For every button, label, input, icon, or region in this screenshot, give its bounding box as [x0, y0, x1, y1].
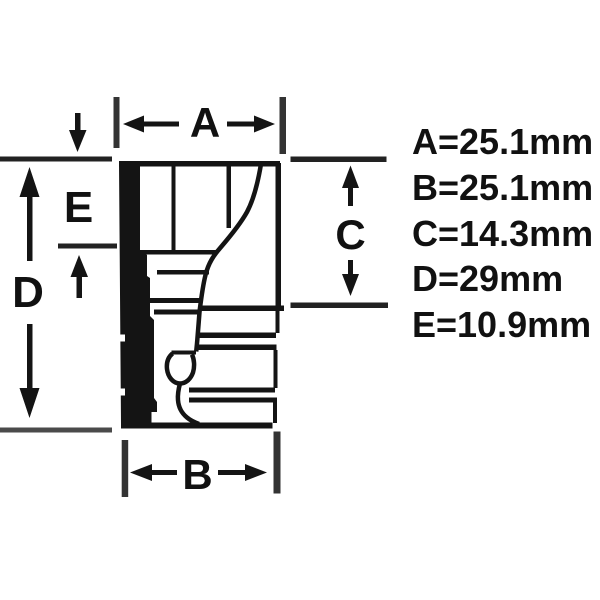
svg-text:A: A	[190, 99, 220, 146]
svg-text:B: B	[182, 451, 212, 498]
svg-text:D=29mm: D=29mm	[412, 258, 563, 299]
svg-text:B=25.1mm: B=25.1mm	[412, 167, 593, 208]
svg-text:E: E	[64, 183, 93, 232]
svg-text:C: C	[335, 211, 365, 258]
svg-text:E=10.9mm: E=10.9mm	[412, 304, 591, 345]
svg-text:C=14.3mm: C=14.3mm	[412, 213, 593, 254]
svg-text:A=25.1mm: A=25.1mm	[412, 121, 593, 162]
svg-text:D: D	[12, 268, 44, 317]
